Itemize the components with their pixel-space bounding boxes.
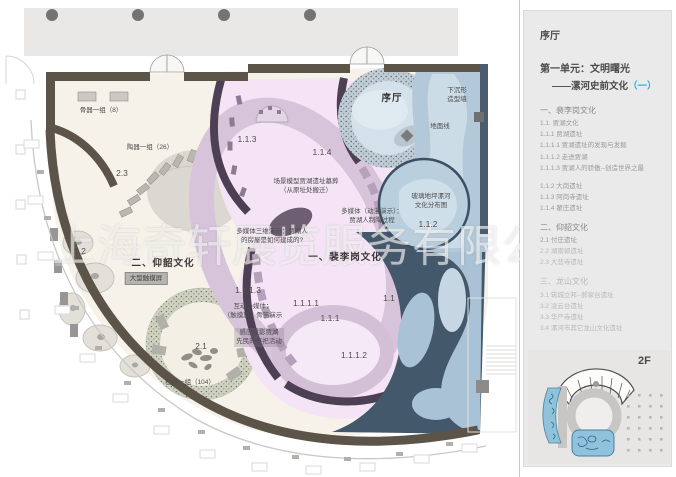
plan-label: 多媒体三维演示：贾湖人 的房屋是如何建成的? (236, 227, 308, 246)
outline-item: 2.2 湖南郭遗址 (540, 246, 659, 257)
outline-item (540, 174, 659, 181)
floor-minimap: 2F (528, 350, 670, 464)
outline-item: 2.1 付庄遗址 (540, 235, 659, 246)
minimap-graphic (528, 350, 670, 464)
outline-item: 3.4 漯河市其它龙山文化遗址 (540, 323, 659, 334)
plan-label: 场景模型贾湖遗址墓葬 （从原址处搬迁） (274, 177, 339, 196)
plan-label: 1.1.1.1 (293, 297, 319, 309)
plan-label: 1.1 (383, 292, 395, 304)
outline-item: 一、裴李岗文化 (540, 104, 659, 118)
plan-label: 互动多媒体： （触摸屏）骨笛演示 (224, 302, 283, 321)
plan-label: 骨器一组（8） (80, 106, 123, 115)
plan-label: 1.1.4 (313, 146, 332, 158)
exhibit-outline: 一、裴李岗文化 1.1. 贾湖文化 1.1.1 贾湖遗址 1.1.1.1 贾湖遗… (540, 104, 659, 334)
outline-item: 1.1.1.2 走进贾湖 (540, 152, 659, 163)
plan-label: 1.1.1 (321, 312, 340, 324)
plan-label: 1.1.1.2 (341, 349, 367, 361)
outline-item: 3.3 华严寺遗址 (540, 312, 659, 323)
outline-item: 2.3 大悲寺遗址 (540, 257, 659, 268)
outline-item: 1.1.2 大岗遗址 (540, 181, 659, 192)
outline-item: 1.1.1.3 贾湖人的骄傲--创造世界之最 (540, 163, 659, 174)
plan-label: 2.3 (116, 167, 128, 179)
outline-item: 3.1 筑城立邦--郝家台遗址 (540, 290, 659, 301)
outline-item: 二、仰韶文化 (540, 221, 659, 235)
hall-title: 序厅 (540, 27, 659, 42)
plan-label: 1.1.1.3 (235, 284, 261, 296)
exhibition-plan-page: 上海奇轩展览服务有限公司 骨器一组（8） 陶器一组（26） 2.3 2.2 二、… (0, 0, 676, 477)
outline-item: 1.1.4 翟庄遗址 (540, 203, 659, 214)
plan-label: 多媒体（动漫演示）： 贾湖人制陶过程 (341, 207, 403, 226)
plan-label: 1.1.3 (238, 133, 257, 145)
plan-label: 玻璃地坪漯河 文化分布图 (412, 192, 451, 211)
plan-label: 大型触摸屏 (125, 272, 168, 285)
outline-item: 1.1. 贾湖文化 (540, 118, 659, 129)
plan-labels: 骨器一组（8） 陶器一组（26） 2.3 2.2 二、仰韶文化 大型触摸屏 2.… (0, 0, 520, 477)
plan-label: 陶器一组（26） (127, 143, 173, 152)
plan-label: 一、裴李岗文化 (308, 251, 382, 265)
outline-item (540, 214, 659, 221)
unit-subtitle-mark: （一） (628, 81, 657, 92)
plan-label: 石器一组（104） (165, 378, 215, 387)
outline-item: 1.1.3 阿岗寺遗址 (540, 192, 659, 203)
floor-plan: 上海奇轩展览服务有限公司 骨器一组（8） 陶器一组（26） 2.3 2.2 二、… (0, 0, 520, 477)
plan-label: 1.1.2 (419, 218, 438, 230)
outline-item: 1.1.1.1 贾湖遗址的发现与发掘 (540, 140, 659, 151)
plan-label: 下沉形 造型墙 (447, 86, 467, 105)
plan-label: 地面线 (430, 122, 450, 131)
plan-label: 序厅 (381, 92, 402, 106)
floor-label: 2F (638, 355, 651, 367)
plan-label: 感应投影贾湖 先民的祭祀活动 (234, 328, 284, 347)
plan-label: 2.2 (74, 245, 86, 257)
outline-item (540, 268, 659, 275)
outline-item: 1.1.1 贾湖遗址 (540, 129, 659, 140)
outline-item: 三、龙山文化 (540, 275, 659, 289)
unit-subtitle: ——漯河史前文化（一） (540, 78, 659, 92)
unit-title: 第一单元：文明曙光 (540, 62, 659, 78)
plan-label: 二、仰韶文化 (131, 257, 194, 271)
outline-item: 3.2 凌云台遗址 (540, 301, 659, 312)
plan-label: 2.1 (195, 340, 207, 352)
unit-subtitle-text: ——漯河史前文化 (552, 81, 628, 92)
